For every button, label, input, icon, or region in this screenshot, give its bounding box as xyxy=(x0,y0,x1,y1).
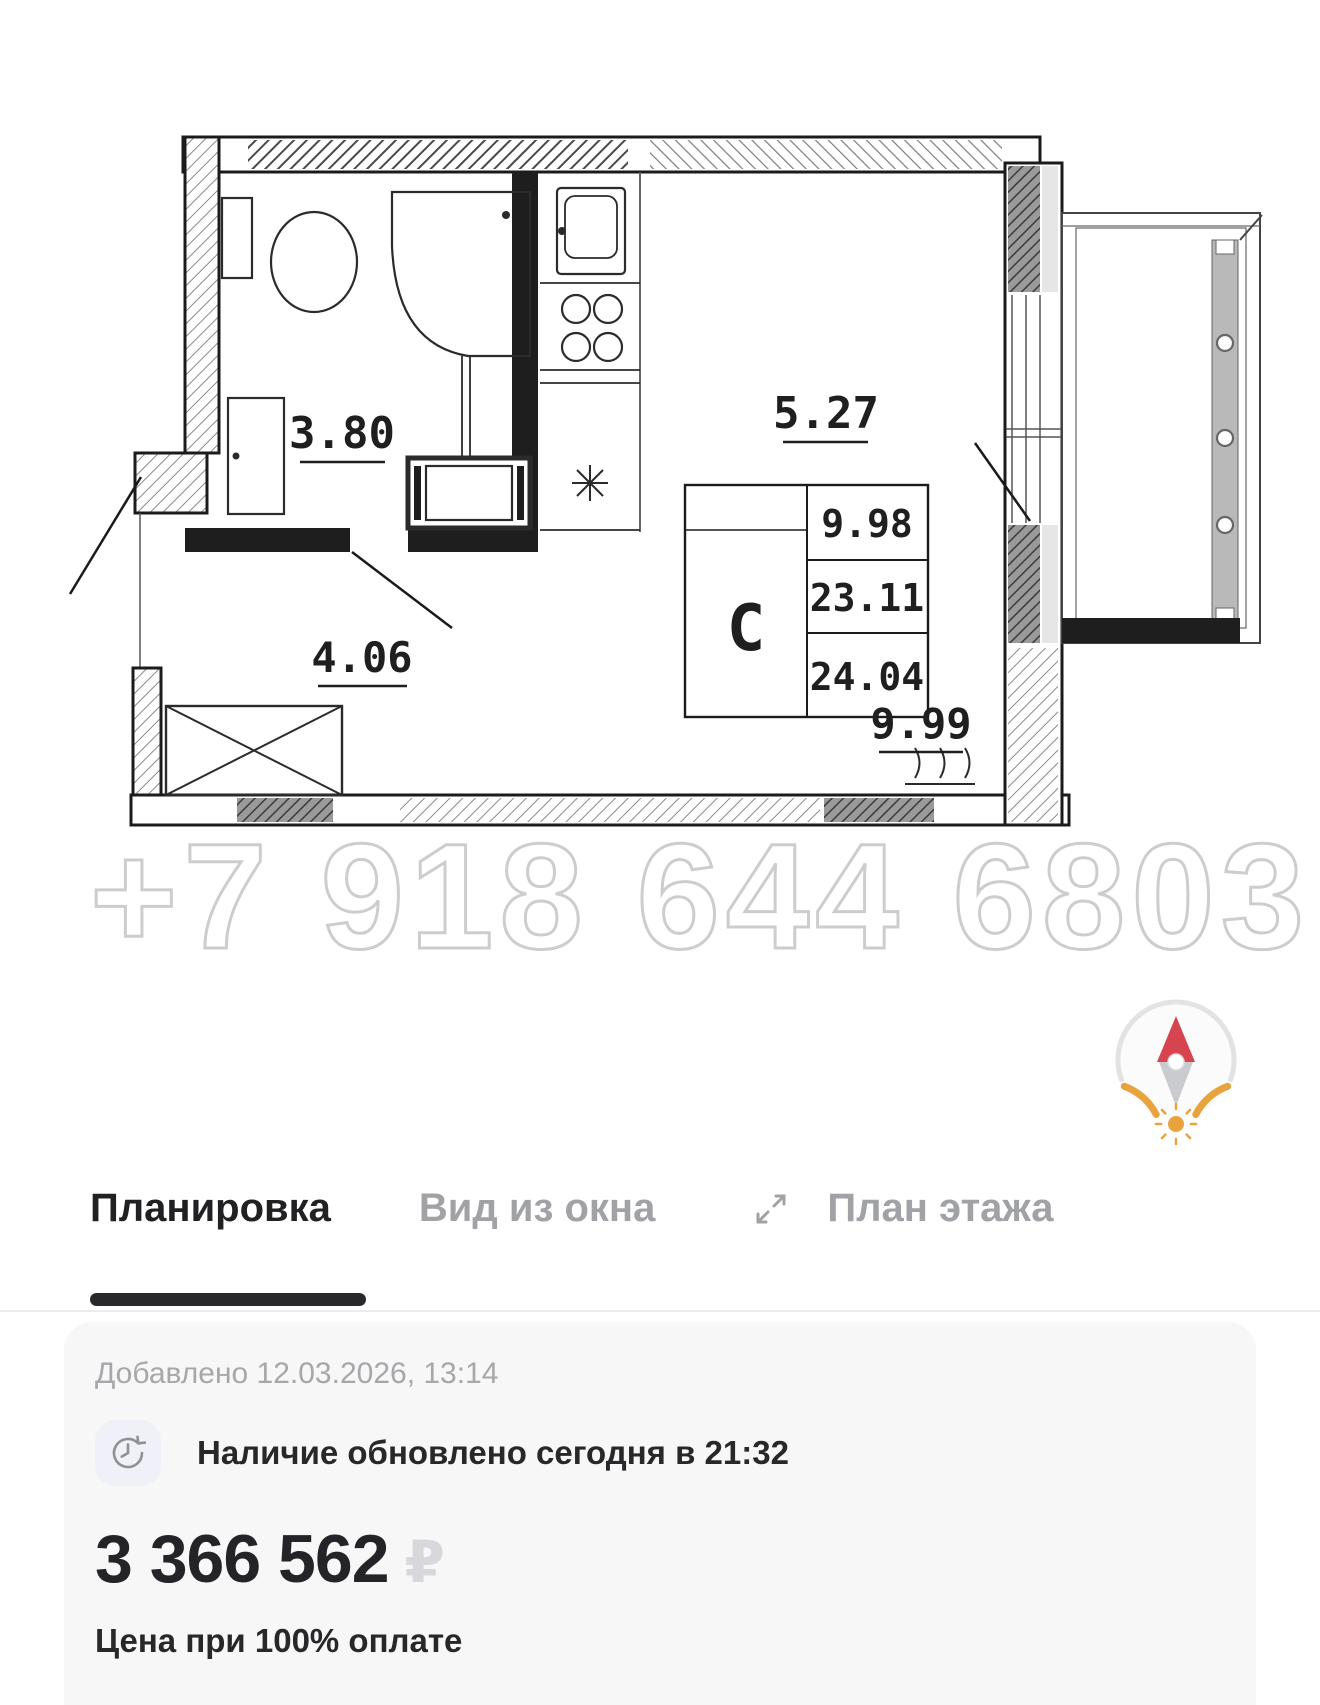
price-row: 3 366 562 ₽ xyxy=(95,1520,1256,1598)
expand-icon[interactable] xyxy=(751,1189,791,1229)
compass-icon xyxy=(1118,1002,1234,1144)
tabs-divider xyxy=(0,1310,1320,1312)
price-value: 3 366 562 xyxy=(95,1520,389,1598)
floor-plan-image: С 9.98 23.11 24.04 3.80 5.27 4.06 9.99 +… xyxy=(0,0,1320,1180)
dim-kitchen-zone: 5.27 xyxy=(773,388,879,439)
dim-room: 9.99 xyxy=(870,699,971,748)
added-date: Добавлено 12.03.2026, 13:14 xyxy=(95,1354,1256,1394)
availability-text: Наличие обновлено сегодня в 21:32 xyxy=(197,1434,789,1472)
table-value-area: 23.11 xyxy=(810,576,924,620)
watermark-phone: +7 918 644 6803 xyxy=(90,812,1310,980)
availability-row: Наличие обновлено сегодня в 21:32 xyxy=(95,1420,1256,1486)
dim-bathroom: 3.80 xyxy=(289,408,395,459)
tab-window-view[interactable]: Вид из окна xyxy=(419,1186,655,1231)
active-tab-underline xyxy=(90,1293,366,1306)
currency-symbol: ₽ xyxy=(405,1528,445,1596)
price-note: Цена при 100% оплате xyxy=(95,1622,1256,1660)
tab-layout[interactable]: Планировка xyxy=(90,1186,331,1231)
dim-hallway: 4.06 xyxy=(311,633,412,682)
table-value-living: 9.98 xyxy=(821,502,913,546)
sun-icon xyxy=(1156,1104,1196,1144)
plan-info-table: С 9.98 23.11 24.04 xyxy=(685,485,928,717)
clock-refresh-icon xyxy=(95,1420,161,1486)
media-tabs: Планировка Вид из окна План этажа xyxy=(90,1186,1054,1231)
listing-info-panel: Добавлено 12.03.2026, 13:14 Наличие обно… xyxy=(64,1322,1256,1705)
table-value-total: 24.04 xyxy=(810,655,924,699)
tab-floor-plan[interactable]: План этажа xyxy=(827,1186,1053,1231)
listing-screen: С 9.98 23.11 24.04 3.80 5.27 4.06 9.99 +… xyxy=(0,0,1320,1705)
room-type-code: С xyxy=(727,592,766,666)
